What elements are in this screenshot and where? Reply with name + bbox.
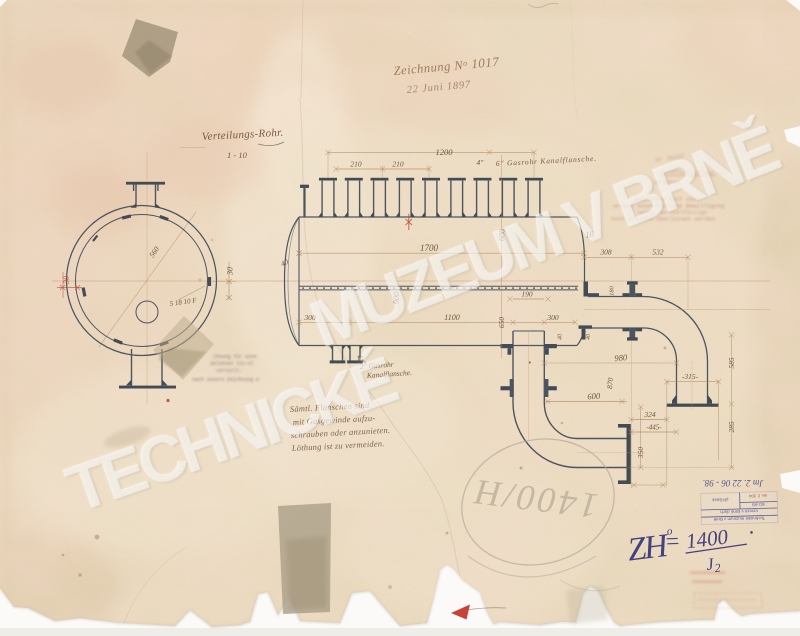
svg-text:180: 180 <box>609 285 616 296</box>
svg-text:40: 40 <box>585 334 592 340</box>
svg-text:chnung für eine: chnung für eine <box>213 353 257 360</box>
svg-text:1400: 1400 <box>685 524 730 553</box>
svg-text:210: 210 <box>350 160 362 169</box>
svg-text:vorteilt.: vorteilt. <box>216 367 242 374</box>
svg-text:870: 870 <box>605 377 615 389</box>
svg-text:210: 210 <box>392 160 404 169</box>
svg-text:1200: 1200 <box>436 147 454 157</box>
svg-text:650: 650 <box>497 317 506 329</box>
svg-text:532: 532 <box>652 248 664 257</box>
svg-text:inv. č. 304: inv. č. 304 <box>748 493 767 498</box>
svg-text:980: 980 <box>614 352 628 363</box>
svg-text:300: 300 <box>546 313 559 322</box>
svg-text:ablehnen IIv-el: ablehnen IIv-el <box>210 360 254 367</box>
svg-text:30: 30 <box>62 276 71 285</box>
svg-text:30: 30 <box>226 267 235 276</box>
svg-text:60 é9: 60 é9 <box>752 501 765 507</box>
svg-text:585: 585 <box>727 357 736 369</box>
svg-text:uzeum v Brně doch: uzeum v Brně doch <box>720 509 759 515</box>
svg-text:nach unsere Zeichnung w: nach unsere Zeichnung w <box>192 376 260 383</box>
svg-text:4": 4" <box>477 158 485 167</box>
svg-text:190: 190 <box>521 290 533 299</box>
svg-text:324: 324 <box>643 410 656 419</box>
svg-text:Jm 2. 22 06 - 98.: Jm 2. 22 06 - 98. <box>703 478 764 488</box>
svg-text:600: 600 <box>587 390 601 401</box>
svg-text:přírůstek: přírůstek <box>711 497 728 502</box>
svg-text:-315-: -315- <box>682 372 699 381</box>
svg-text:1 - 10: 1 - 10 <box>227 150 248 160</box>
svg-text:285: 285 <box>727 421 736 433</box>
svg-text:40: 40 <box>557 334 564 340</box>
svg-text:-445-: -445- <box>646 424 662 432</box>
